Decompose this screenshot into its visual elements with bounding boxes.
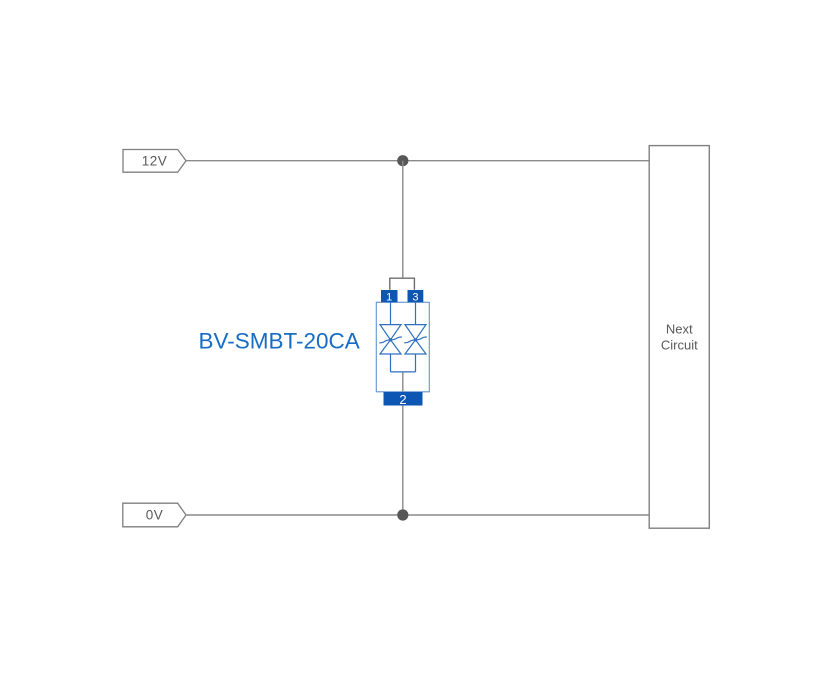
svg-text:2: 2 — [399, 392, 406, 407]
svg-text:0V: 0V — [146, 508, 164, 523]
svg-text:Circuit: Circuit — [661, 338, 698, 353]
svg-text:3: 3 — [412, 292, 418, 304]
svg-text:BV-SMBT-20CA: BV-SMBT-20CA — [199, 329, 360, 354]
svg-text:12V: 12V — [142, 153, 168, 168]
svg-text:1: 1 — [386, 292, 392, 304]
svg-text:Next: Next — [666, 322, 693, 337]
